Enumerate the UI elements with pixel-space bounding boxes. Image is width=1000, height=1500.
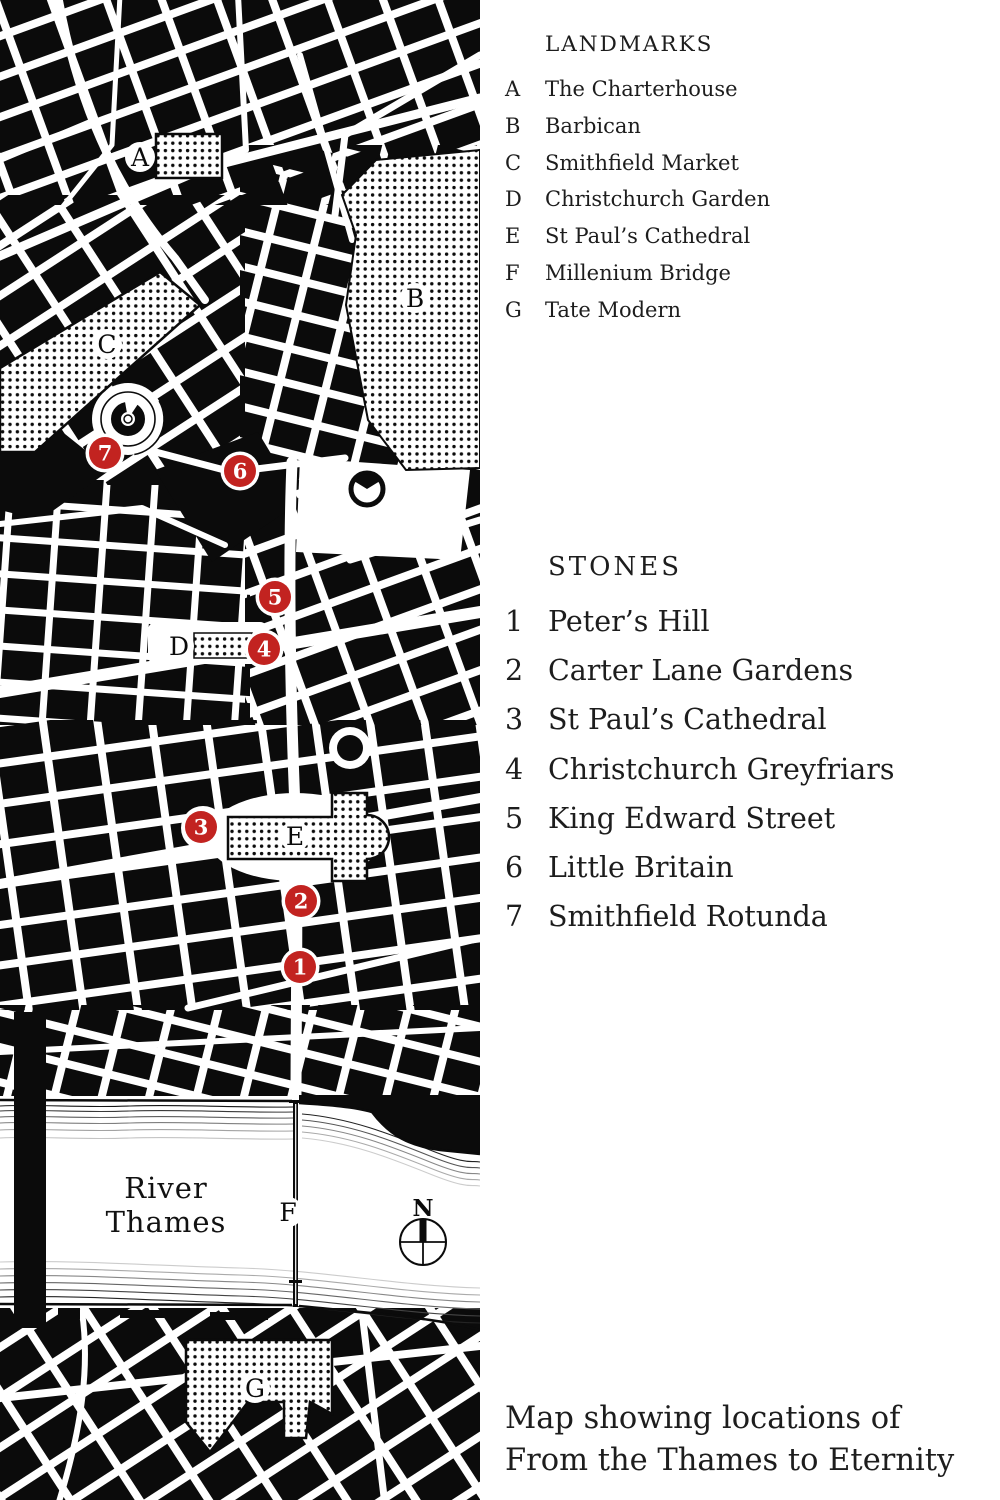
landmark-key: A — [505, 71, 545, 108]
map-letter-F: F — [273, 1197, 303, 1227]
landmark-label: St Paul’s Cathedral — [545, 218, 750, 255]
map-caption: Map showing locations of From the Thames… — [505, 1398, 954, 1482]
landmarks-title: LANDMARKS — [545, 32, 770, 57]
landmark-label: Barbican — [545, 108, 641, 145]
svg-text:7: 7 — [98, 441, 113, 466]
svg-text:5: 5 — [268, 585, 283, 610]
svg-text:1: 1 — [293, 955, 308, 980]
map-letter-D: D — [164, 631, 194, 661]
stone-key: 4 — [505, 745, 548, 794]
landmark-row: A The Charterhouse — [505, 71, 770, 108]
stone-key: 6 — [505, 843, 548, 892]
landmark-label: The Charterhouse — [545, 71, 738, 108]
landmark-label: Millenium Bridge — [545, 255, 731, 292]
landmark-label: Tate Modern — [545, 292, 681, 329]
stone-marker-4: 4 — [245, 630, 284, 669]
map-poster: N River Thames ABCDEFG 1234567 LANDMARKS… — [0, 0, 1000, 1500]
landmark-label: Smithfield Market — [545, 145, 739, 182]
stone-row: 4 Christchurch Greyfriars — [505, 745, 895, 794]
stone-marker-1: 1 — [281, 948, 320, 987]
landmark-row: E St Paul’s Cathedral — [505, 218, 770, 255]
stone-row: 1 Peter’s Hill — [505, 597, 895, 646]
landmark-key: E — [505, 218, 545, 255]
stone-marker-5: 5 — [256, 578, 295, 617]
stone-label: Smithfield Rotunda — [548, 892, 828, 941]
landmark-key: D — [505, 181, 545, 218]
compass-label: N — [412, 1195, 433, 1222]
svg-text:C: C — [97, 330, 116, 359]
stone-label: St Paul’s Cathedral — [548, 695, 827, 744]
stone-row: 6 Little Britain — [505, 843, 895, 892]
map-letter-E: E — [280, 821, 310, 851]
stone-row: 7 Smithfield Rotunda — [505, 892, 895, 941]
svg-text:6: 6 — [233, 459, 248, 484]
stone-key: 2 — [505, 646, 548, 695]
svg-text:E: E — [286, 822, 304, 851]
svg-text:A: A — [130, 143, 150, 172]
landmark-row: C Smithfield Market — [505, 145, 770, 182]
landmark-key: B — [505, 108, 545, 145]
stone-key: 7 — [505, 892, 548, 941]
stone-row: 5 King Edward Street — [505, 794, 895, 843]
map-letter-C: C — [92, 329, 122, 359]
caption-line2: From the Thames to Eternity — [505, 1440, 954, 1482]
map-letter-G: G — [240, 1373, 270, 1403]
svg-text:B: B — [406, 284, 424, 313]
stone-marker-7: 7 — [86, 434, 125, 473]
river-label-line2: Thames — [106, 1205, 227, 1239]
map-letter-A: A — [125, 142, 155, 172]
landmark-row: B Barbican — [505, 108, 770, 145]
stone-key: 5 — [505, 794, 548, 843]
stone-label: Christchurch Greyfriars — [548, 745, 895, 794]
landmark-label: Christchurch Garden — [545, 181, 770, 218]
caption-line1: Map showing locations of — [505, 1398, 954, 1440]
stone-row: 3 St Paul’s Cathedral — [505, 695, 895, 744]
stone-label: King Edward Street — [548, 794, 835, 843]
svg-text:D: D — [169, 632, 189, 661]
river-label-line1: River — [124, 1171, 208, 1205]
landmark-key: G — [505, 292, 545, 329]
landmark-row: G Tate Modern — [505, 292, 770, 329]
stone-marker-6: 6 — [221, 452, 260, 491]
stone-key: 3 — [505, 695, 548, 744]
map-letter-B: B — [400, 283, 430, 313]
svg-text:2: 2 — [294, 889, 309, 914]
landmark-key: F — [505, 255, 545, 292]
stone-row: 2 Carter Lane Gardens — [505, 646, 895, 695]
landmark-row: D Christchurch Garden — [505, 181, 770, 218]
stone-marker-2: 2 — [282, 882, 321, 921]
blackfriars-bridge — [14, 1012, 46, 1328]
city-map: N River Thames ABCDEFG 1234567 — [0, 0, 480, 1500]
stone-key: 1 — [505, 597, 548, 646]
legend-panel: LANDMARKS A The Charterhouse B Barbican … — [480, 0, 1000, 1500]
stone-label: Peter’s Hill — [548, 597, 710, 646]
svg-text:3: 3 — [194, 815, 209, 840]
svg-text:G: G — [245, 1374, 265, 1403]
svg-text:F: F — [279, 1198, 296, 1227]
stone-label: Little Britain — [548, 843, 734, 892]
stones-title: STONES — [548, 552, 895, 582]
landmark-row: F Millenium Bridge — [505, 255, 770, 292]
landmarks-legend: LANDMARKS A The Charterhouse B Barbican … — [505, 32, 770, 329]
stone-marker-3: 3 — [182, 808, 221, 847]
stones-legend: STONES 1 Peter’s Hill 2 Carter Lane Gard… — [505, 552, 895, 941]
svg-text:4: 4 — [257, 637, 272, 662]
stone-label: Carter Lane Gardens — [548, 646, 853, 695]
landmark-key: C — [505, 145, 545, 182]
